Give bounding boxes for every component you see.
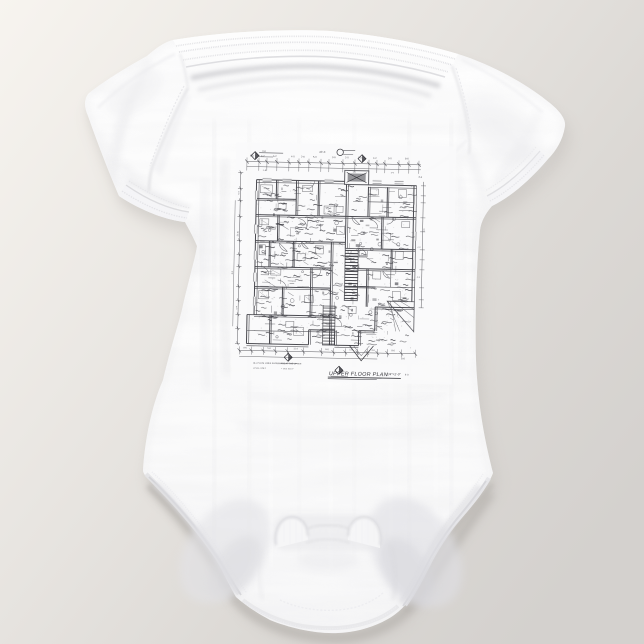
- svg-text:4-0: 4-0: [405, 373, 409, 377]
- svg-text:40'-0: 40'-0: [319, 150, 326, 154]
- svg-text:1/4"=1'-0": 1/4"=1'-0": [387, 372, 402, 376]
- svg-text:11-2: 11-2: [293, 347, 298, 350]
- svg-text:+ SEE ELEV: + SEE ELEV: [281, 368, 294, 370]
- svg-text:24-6: 24-6: [237, 231, 240, 237]
- svg-text:LEVEL ONLY: LEVEL ONLY: [253, 368, 267, 370]
